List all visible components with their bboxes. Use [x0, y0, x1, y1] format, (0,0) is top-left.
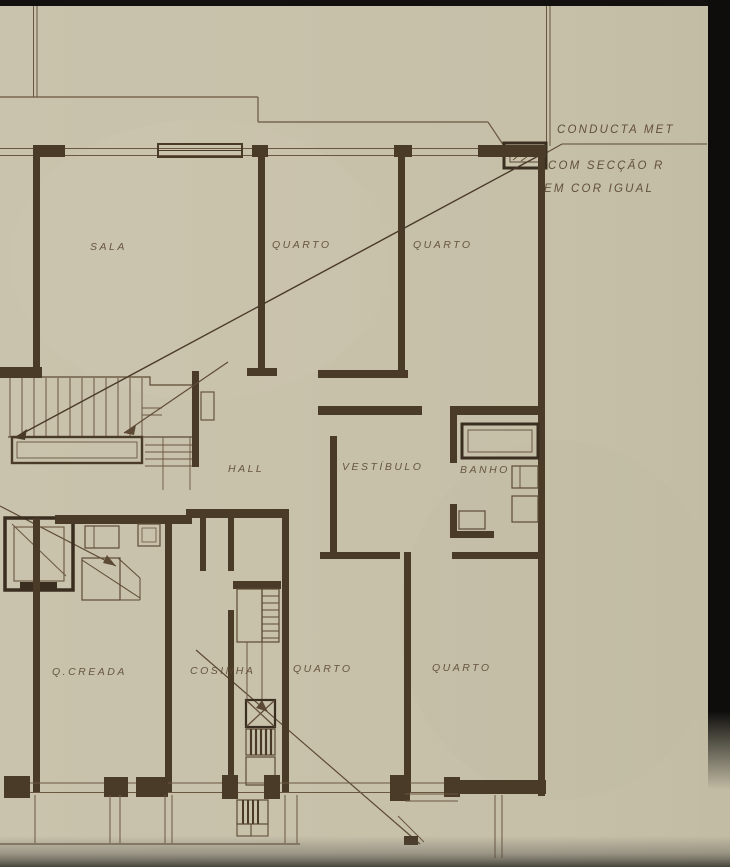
room-label-quarto-top-1: QUARTO	[272, 239, 332, 251]
annotation-line-2: COM SECÇÃO R	[548, 159, 665, 172]
scan-border-right	[708, 0, 730, 790]
duct-striped-box	[246, 729, 275, 755]
room-label-vestibulo: VESTÍBULO	[342, 460, 423, 473]
room-label-hall: HALL	[228, 463, 264, 475]
room-label-sala: SALA	[90, 241, 127, 253]
scan-border-top	[0, 0, 730, 6]
bath-wall	[450, 531, 494, 538]
blueprint-scan: SALA QUARTO QUARTO HALL VESTÍBULO BANHO …	[0, 0, 730, 867]
room-label-banho: BANHO	[460, 464, 510, 476]
paper-blotch	[400, 440, 720, 800]
vestibule-partition-wall	[330, 436, 337, 554]
annotation-line-3: EM COR IGUAL	[544, 183, 654, 195]
room-label-quarto-bottom-1: QUARTO	[293, 663, 353, 675]
room-label-cosinha: COSINHA	[190, 665, 255, 677]
scan-shadow-bottom	[0, 836, 730, 867]
floor-plan-drawing: SALA QUARTO QUARTO HALL VESTÍBULO BANHO …	[0, 0, 730, 867]
paper-blotch	[10, 120, 390, 400]
room-label-quarto-bottom-2: QUARTO	[432, 662, 492, 674]
room-label-q-creada: Q.CREADA	[52, 666, 127, 678]
room-label-quarto-top-2: QUARTO	[413, 239, 473, 251]
annotation-line-1: CONDUCTA MET	[557, 124, 675, 136]
